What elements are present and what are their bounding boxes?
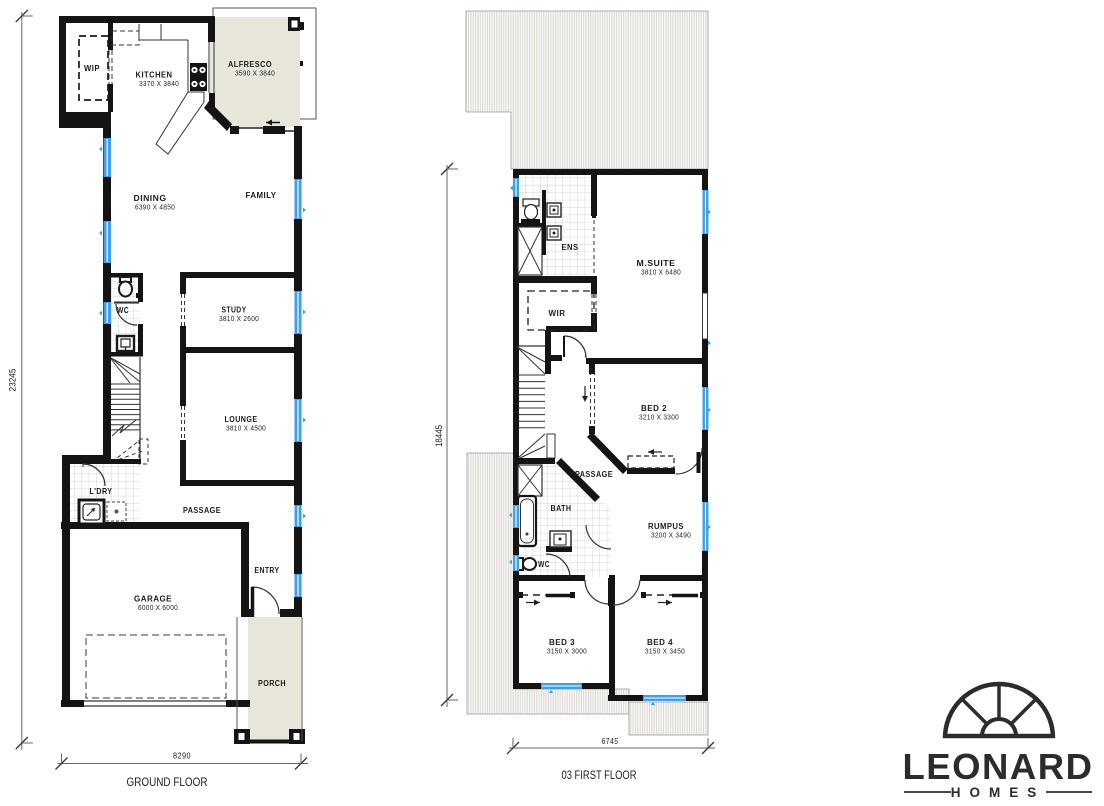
svg-text:PASSAGE: PASSAGE — [183, 505, 221, 515]
svg-text:STUDY: STUDY — [222, 305, 247, 315]
svg-text:BED 3: BED 3 — [549, 637, 575, 647]
svg-text:3590 X 3840: 3590 X 3840 — [235, 69, 275, 78]
svg-text:ENS: ENS — [562, 242, 579, 252]
svg-text:GROUND FLOOR: GROUND FLOOR — [127, 775, 208, 789]
svg-text:ALFRESCO: ALFRESCO — [228, 59, 272, 69]
svg-text:23245: 23245 — [8, 369, 18, 392]
svg-text:3200 X 3490: 3200 X 3490 — [651, 531, 691, 540]
svg-text:WIP: WIP — [84, 63, 100, 73]
svg-text:6745: 6745 — [602, 737, 619, 746]
svg-text:HOMES: HOMES — [951, 785, 1046, 800]
svg-text:03 FIRST FLOOR: 03 FIRST FLOOR — [562, 768, 637, 782]
svg-text:3150 X 3000: 3150 X 3000 — [547, 647, 587, 656]
svg-text:LEONARD: LEONARD — [903, 746, 1094, 787]
svg-text:L'DRY: L'DRY — [90, 486, 113, 496]
svg-text:ENTRY: ENTRY — [255, 565, 280, 575]
svg-text:18445: 18445 — [434, 425, 444, 447]
svg-text:KITCHEN: KITCHEN — [136, 70, 173, 80]
svg-text:LOUNGE: LOUNGE — [225, 414, 258, 424]
svg-text:PASSAGE: PASSAGE — [575, 469, 613, 479]
svg-text:6390 X 4850: 6390 X 4850 — [135, 203, 175, 212]
svg-text:RUMPUS: RUMPUS — [648, 521, 684, 531]
svg-text:FAMILY: FAMILY — [246, 190, 277, 200]
svg-text:BED 4: BED 4 — [647, 637, 673, 647]
svg-text:3210 X 3300: 3210 X 3300 — [639, 413, 679, 422]
svg-text:PORCH: PORCH — [258, 678, 286, 688]
svg-text:WIR: WIR — [549, 308, 566, 318]
svg-text:8290: 8290 — [173, 752, 191, 761]
svg-text:BATH: BATH — [551, 503, 572, 513]
svg-text:GARAGE: GARAGE — [134, 594, 172, 604]
svg-text:3810 X 4500: 3810 X 4500 — [226, 424, 266, 433]
svg-text:M.SUITE: M.SUITE — [637, 258, 676, 268]
svg-text:WC: WC — [117, 305, 129, 315]
svg-text:3150 X 3450: 3150 X 3450 — [645, 647, 685, 656]
svg-text:BED 2: BED 2 — [641, 403, 667, 413]
svg-text:DINING: DINING — [134, 193, 167, 203]
svg-text:6000 X 6000: 6000 X 6000 — [138, 603, 178, 612]
svg-text:WC: WC — [538, 559, 550, 569]
svg-text:3810 X 6480: 3810 X 6480 — [641, 268, 681, 277]
svg-text:3810 X 2600: 3810 X 2600 — [219, 314, 259, 323]
svg-text:3370 X 3840: 3370 X 3840 — [139, 79, 179, 88]
